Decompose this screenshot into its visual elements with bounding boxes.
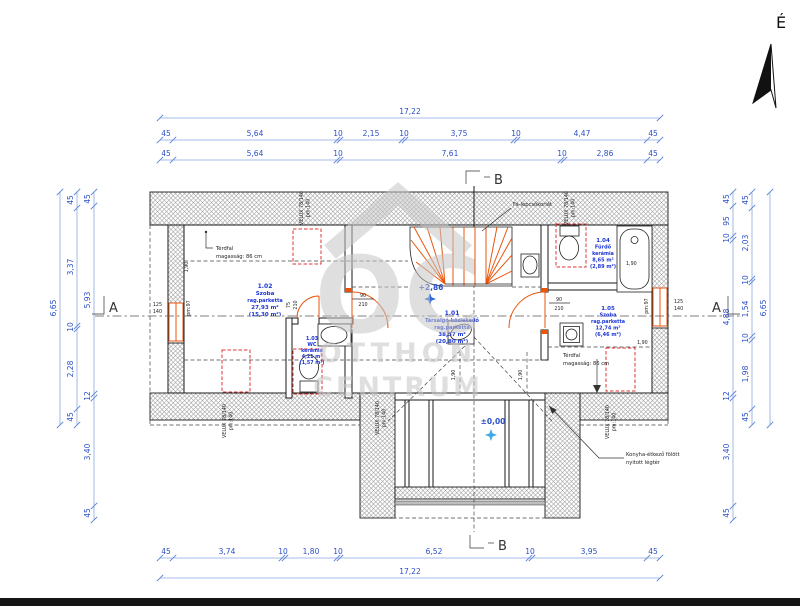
void-wall-right — [545, 393, 580, 518]
kitchen-void-note-b: nyitott légtér — [626, 459, 661, 466]
svg-text:Szoba: Szoba — [256, 291, 275, 297]
dim-label: 3,40 — [722, 443, 731, 460]
void-posts — [395, 400, 545, 487]
dim-label: 45 — [161, 149, 171, 158]
dim-top-overall: 17,22 — [399, 107, 421, 116]
svg-text:8,65 m²: 8,65 m² — [592, 258, 613, 264]
svg-text:rag.parketta: rag.parketta — [247, 298, 282, 304]
dim-bottom-overall: 17,22 — [399, 567, 421, 576]
velux-label: VELUX 78/140 — [564, 191, 570, 225]
section-b-top: B — [494, 173, 503, 188]
dim-label: 45 — [741, 195, 750, 205]
dim-label: 10 — [741, 333, 750, 343]
dim-label: 1,80 — [303, 547, 320, 556]
wc-door-height: 210 — [293, 300, 299, 309]
wall-b-upper — [541, 225, 548, 292]
dim-label: 2,15 — [363, 129, 380, 138]
svg-text:(15,30 m²): (15,30 m²) — [249, 311, 282, 318]
dim-label: 12 — [83, 391, 92, 401]
wc-door-width: 75 — [286, 302, 292, 308]
knee-wall-note-1b: magasság: 86 cm — [216, 253, 262, 260]
dimensions-left: 6,65 45 3,37 10 2,28 45 45 5,93 12 3,40 … — [49, 189, 97, 523]
dimensions-top: 17,22 45 5,64 10 2,15 10 3,75 10 4,47 45… — [157, 107, 663, 163]
dim-label: 45 — [741, 412, 750, 422]
section-a-left: A — [109, 301, 118, 316]
room-label-1-04: 1.04 Fürdő kerámia 8,65 m² (2,89 m²) — [590, 238, 616, 270]
dim-label: 45 — [161, 547, 171, 556]
svg-text:12,74 m²: 12,74 m² — [596, 326, 621, 332]
north-label: É — [776, 13, 786, 32]
velux-label: VELUX 78/140 — [375, 401, 381, 435]
room-label-1-05: 1.05 Szoba rag.parketta 12,74 m² (6,46 m… — [591, 306, 625, 338]
dim-label: 45 — [83, 194, 92, 204]
wall-b-lower — [541, 330, 548, 360]
knee-wall-note-2: Térdfal — [562, 352, 580, 359]
headroom-label-void-2: 1,90 — [518, 370, 524, 381]
right-knee-wall-hatch-top — [652, 225, 668, 288]
dim-label: 45 — [66, 195, 75, 205]
window-right-width: 125 — [674, 299, 683, 305]
velux-label: VELUX 78/140 — [605, 405, 611, 439]
svg-text:1.04: 1.04 — [596, 238, 610, 244]
dimensions-bottom: 45 3,74 10 1,80 10 6,52 10 3,95 45 17,22 — [157, 547, 663, 581]
window-left-width: 125 — [153, 302, 162, 308]
dim-label: 5,64 — [247, 129, 264, 138]
dim-label: 10 — [722, 233, 731, 243]
svg-text:rag.parketta: rag.parketta — [591, 319, 625, 325]
page-bottom-edge — [0, 598, 800, 606]
level-star-icon — [485, 429, 497, 441]
dim-label: 7,61 — [442, 149, 459, 158]
dim-label: 45 — [722, 194, 731, 204]
right-knee-wall-hatch-bottom — [652, 328, 668, 393]
dim-label: 2,28 — [66, 360, 75, 377]
dim-label: 4,47 — [574, 129, 591, 138]
svg-text:Szoba: Szoba — [600, 313, 617, 319]
dim-label: 45 — [83, 508, 92, 518]
dim-left-overall: 6,65 — [49, 299, 58, 316]
velux-rect-5 — [606, 348, 635, 391]
dim-label: 45 — [66, 412, 75, 422]
dim-label: 3,74 — [219, 547, 236, 556]
section-a-right: A — [712, 301, 721, 316]
dim-label: 3,75 — [451, 129, 468, 138]
window-right-pm: pm:97 — [644, 298, 650, 313]
velux-pm-label: pm:140 — [571, 199, 577, 218]
dim-label: 3,40 — [83, 443, 92, 460]
dim-label: 3,95 — [581, 547, 598, 556]
wc-wall-top-stub — [292, 318, 298, 324]
dim-label: 45 — [161, 129, 171, 138]
dim-label: 6,52 — [426, 547, 443, 556]
north-indicator: É — [753, 13, 786, 108]
dim-label: 95 — [722, 216, 731, 226]
dim-label: 45 — [648, 547, 658, 556]
room-label-1-02: 1.02 Szoba rag.parketta 27,93 m² (15,30 … — [247, 283, 282, 318]
void-sill — [395, 487, 545, 499]
dim-label: 12 — [722, 391, 731, 401]
dim-label: 10 — [557, 149, 567, 158]
dim-label: 5,93 — [83, 291, 92, 308]
velux-pm-label: pm:140 — [306, 199, 312, 218]
kitchen-void-note: Konyha-étkező fölött — [626, 451, 679, 458]
section-b-bottom: B — [498, 539, 507, 554]
dim-label: 45 — [648, 149, 658, 158]
svg-text:1.02: 1.02 — [258, 283, 273, 290]
dim-label: 5,64 — [247, 149, 264, 158]
headroom-label-left: 1,90 — [184, 262, 190, 273]
velux-pm-label: pm:140 — [229, 412, 235, 431]
dim-label: 3,37 — [66, 258, 75, 275]
dim-label: 1,54 — [741, 300, 750, 317]
dim-label: 10 — [333, 129, 343, 138]
window-left-pm: pm:97 — [186, 300, 192, 315]
knee-wall-note-2b: magasság: 86 cm — [563, 360, 609, 367]
dim-label: 10 — [278, 547, 288, 556]
dim-label: 2,86 — [597, 149, 614, 158]
headroom-label-right: 1,90 — [637, 340, 648, 346]
svg-text:kerámia: kerámia — [592, 250, 614, 257]
velux-label: VELUX 78/140 — [222, 404, 228, 438]
left-knee-wall-hatch-bottom — [168, 343, 184, 393]
watermark-line2: CENTRUM — [313, 372, 483, 403]
dim-label: 45 — [722, 508, 731, 518]
dim-label: 10 — [399, 129, 409, 138]
svg-text:(2,89 m²): (2,89 m²) — [590, 264, 616, 270]
dim-label: 10 — [333, 149, 343, 158]
dim-label: 10 — [511, 129, 521, 138]
level-ground: ±0,00 — [481, 417, 506, 426]
dim-label: 10 — [525, 547, 535, 556]
wc-wall-left — [286, 318, 292, 398]
svg-text:27,93 m²: 27,93 m² — [251, 304, 279, 311]
tub-length-label: 1,90 — [626, 261, 637, 267]
dim-label: 10 — [333, 547, 343, 556]
dim-right-overall: 6,65 — [759, 299, 768, 316]
window-right-height: 140 — [674, 306, 683, 312]
watermark-line1: OTTHON — [319, 338, 478, 369]
window-left-height: 140 — [153, 309, 162, 315]
svg-text:(6,46 m²): (6,46 m²) — [595, 332, 621, 338]
left-knee-wall-hatch-top — [168, 225, 184, 303]
dimensions-right: 45 95 10 4,88 12 3,40 45 45 2,03 10 1,54… — [722, 189, 773, 523]
dim-label: 10 — [66, 322, 75, 332]
dim-label: 10 — [741, 275, 750, 285]
void-sill-edge — [395, 501, 545, 505]
door-b-swing — [509, 292, 545, 328]
stair-rail-note: Fa-lépcsőkorlát — [513, 201, 552, 208]
dim-label: 1,98 — [741, 365, 750, 382]
dim-label: 45 — [648, 129, 658, 138]
door-b-height: 210 — [554, 306, 563, 312]
floor-plan-drawing: 1,90 1,90 1,90 1,90 — [0, 0, 800, 606]
dim-label: 2,03 — [741, 234, 750, 251]
velux-label: VELUX 78/140 — [299, 191, 305, 225]
velux-rect-3 — [222, 350, 250, 392]
dim-label: 4,88 — [722, 308, 731, 325]
bottom-wall-right — [580, 393, 668, 420]
velux-pm-label: pm:140 — [612, 413, 618, 432]
floor-plan-page: 1,90 1,90 1,90 1,90 — [0, 0, 800, 606]
velux-pm-label: pm:140 — [382, 409, 388, 428]
door-b-width: 90 — [556, 297, 562, 303]
bathroom-toilet — [560, 226, 579, 236]
svg-text:Fürdő: Fürdő — [595, 245, 612, 251]
svg-text:1.05: 1.05 — [601, 306, 615, 312]
knee-wall-note-1: Térdfal — [215, 245, 233, 252]
